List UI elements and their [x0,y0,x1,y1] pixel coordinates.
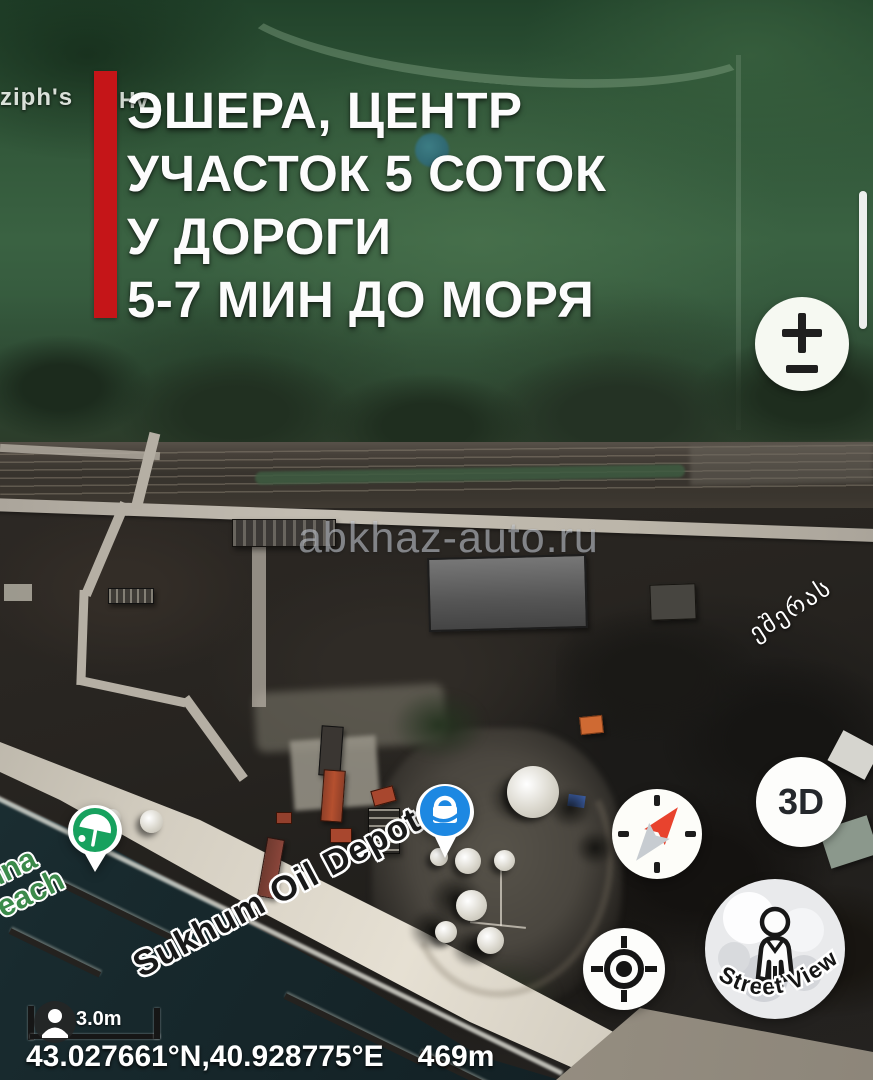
scale-bar-right-tick [154,1008,160,1039]
beach-umbrella-pin[interactable] [65,803,125,875]
building-red-roof [276,812,292,824]
oil-tank [507,766,559,818]
person-scale-badge [33,1000,77,1044]
headline-line: У ДОРОГИ [127,205,606,268]
scroll-indicator[interactable] [859,191,867,329]
locked-place-pin[interactable] [412,781,478,861]
compass-button[interactable] [611,788,703,880]
coordinates-value: 43.027661°N,40.928775°E [26,1040,384,1073]
3d-button-label: 3D [778,781,824,823]
building-ruin [108,588,154,604]
my-location-button[interactable] [582,927,666,1011]
terrain-bushes [392,690,487,760]
status-coordinates: 43.027661°N,40.928775°E469m [26,1040,494,1074]
beach-structure [140,810,163,833]
poi-label-fragment: ziph's [0,84,73,112]
oil-tank [456,890,487,921]
road-depot-access [252,535,266,707]
accent-red-bar [94,71,117,318]
3d-view-button[interactable]: 3D [756,757,846,847]
minus-icon [786,365,818,373]
plus-icon [798,313,806,353]
watermark: abkhaz-auto.ru [298,514,599,563]
zoom-control-button[interactable] [755,297,849,391]
map-app-screen: ziph's Hv ეშერას hna each Sukhum Oil Dep… [0,0,873,1080]
street-view-button[interactable]: Street View [704,878,846,1020]
listing-headline: ЭШЕРА, ЦЕНТР УЧАСТОК 5 СОТОК У ДОРОГИ 5-… [127,79,606,331]
headline-line: УЧАСТОК 5 СОТОК [127,142,606,205]
oil-tank [494,850,515,871]
oil-tank [435,921,457,943]
building-small-light [4,584,32,601]
scale-distance-label: 3.0m [76,1008,122,1031]
oil-tank [477,927,504,954]
terrain-platform [690,442,873,485]
building-orange-hut [579,715,604,735]
terrain-dark-pit [575,830,615,866]
headline-line: 5-7 МИН ДО МОРЯ [127,268,606,331]
building-red-roof [320,769,346,822]
building-small-dark [649,583,696,621]
altitude-value: 469m [418,1040,495,1073]
building-warehouse [427,554,588,632]
headline-line: ЭШЕРА, ЦЕНТР [127,79,606,142]
